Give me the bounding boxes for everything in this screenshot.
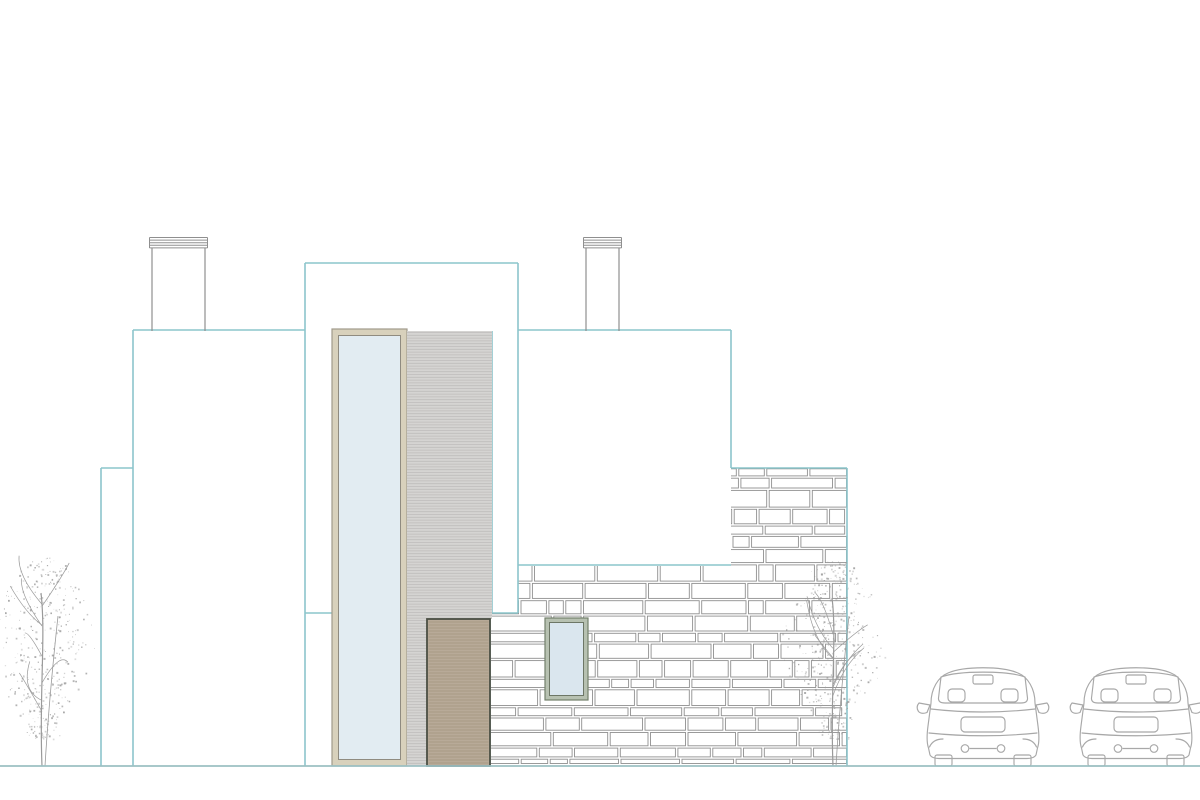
elevation-scene	[0, 0, 1200, 800]
tall-window	[332, 329, 407, 766]
stone-wall-window	[545, 618, 588, 700]
car-left	[917, 668, 1049, 766]
elevation-drawing	[0, 0, 1200, 800]
car-right	[1070, 668, 1200, 766]
stone-wall	[490, 469, 847, 764]
chimney-left	[150, 238, 208, 332]
entry-door	[427, 619, 490, 766]
chimney-right	[584, 238, 622, 332]
tree-left	[0, 556, 95, 766]
